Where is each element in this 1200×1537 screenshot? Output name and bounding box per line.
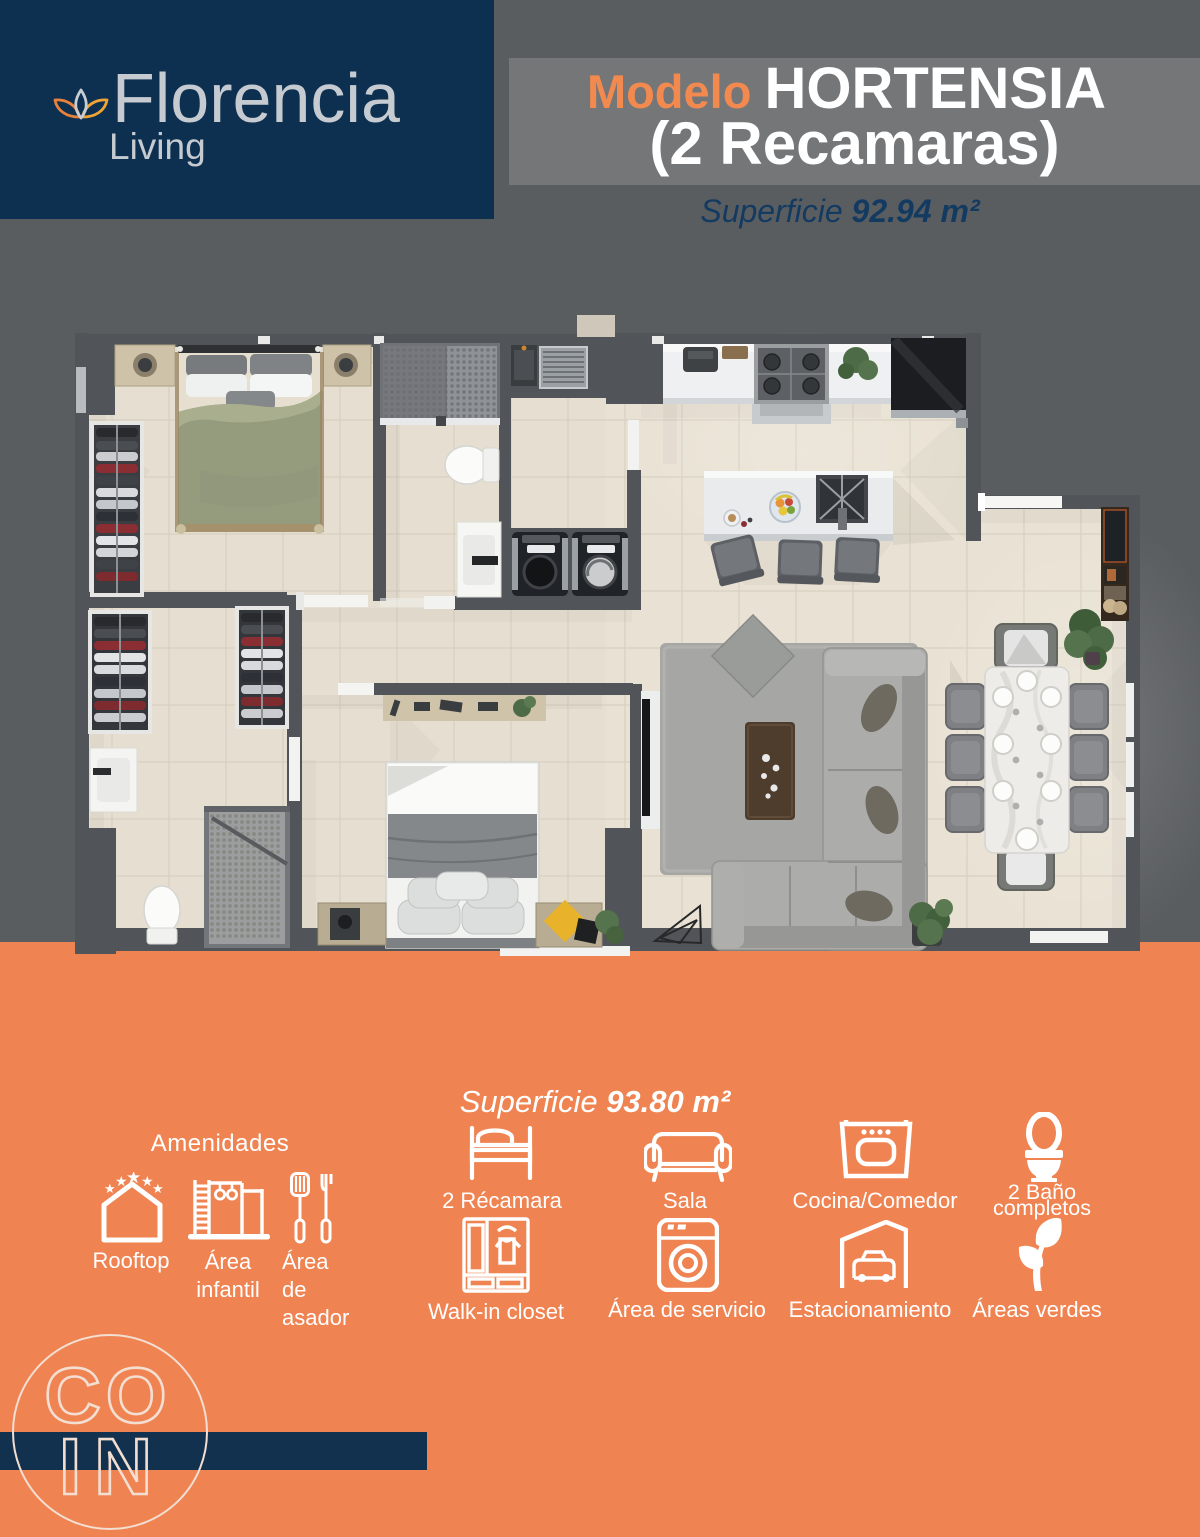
svg-text:★: ★ (104, 1181, 116, 1196)
svg-text:IN: IN (59, 1422, 165, 1511)
svg-text:★: ★ (152, 1181, 164, 1196)
